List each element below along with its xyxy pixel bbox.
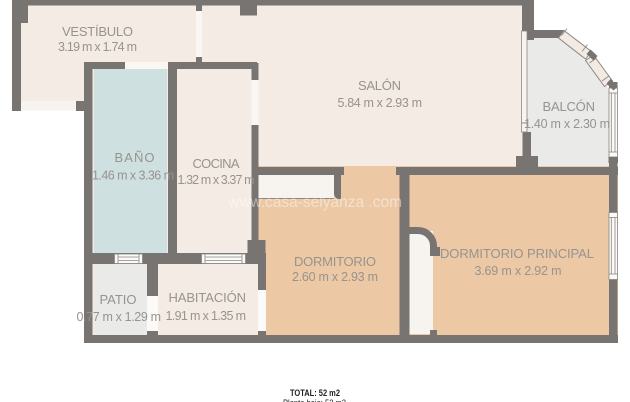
svg-text:SALÓN: SALÓN bbox=[358, 78, 401, 93]
svg-text:www.casa-selyanza .com: www.casa-selyanza .com bbox=[227, 194, 402, 211]
svg-text:1.46 m x 3.36 m: 1.46 m x 3.36 m bbox=[92, 169, 174, 183]
svg-text:BAÑO: BAÑO bbox=[115, 150, 155, 165]
svg-text:1.32 m x 3.37 m: 1.32 m x 3.37 m bbox=[178, 173, 255, 187]
svg-text:3.19 m x 1.74 m: 3.19 m x 1.74 m bbox=[58, 40, 137, 54]
svg-text:1.91 m x 1.35 m: 1.91 m x 1.35 m bbox=[166, 309, 247, 323]
svg-text:PATIO: PATIO bbox=[100, 292, 137, 307]
svg-text:2.60 m x 2.93 m: 2.60 m x 2.93 m bbox=[292, 270, 378, 284]
svg-text:3.69 m x 2.92 m: 3.69 m x 2.92 m bbox=[475, 264, 562, 278]
svg-text:VESTÍBULO: VESTÍBULO bbox=[62, 24, 133, 39]
svg-text:BALCÓN: BALCÓN bbox=[543, 99, 596, 114]
svg-text:HABITACIÓN: HABITACIÓN bbox=[169, 290, 247, 305]
svg-text:Planta baja: 52 m2: Planta baja: 52 m2 bbox=[283, 398, 346, 402]
svg-text:1.40 m x 2.30 m: 1.40 m x 2.30 m bbox=[524, 117, 610, 131]
svg-text:0.77 m x 1.29 m: 0.77 m x 1.29 m bbox=[77, 310, 162, 324]
svg-text:DORMITORIO: DORMITORIO bbox=[294, 254, 376, 269]
svg-text:COCINA: COCINA bbox=[193, 156, 240, 171]
svg-text:5.84 m x 2.93 m: 5.84 m x 2.93 m bbox=[338, 96, 423, 110]
svg-text:DORMITORIO PRINCIPAL: DORMITORIO PRINCIPAL bbox=[440, 246, 594, 261]
